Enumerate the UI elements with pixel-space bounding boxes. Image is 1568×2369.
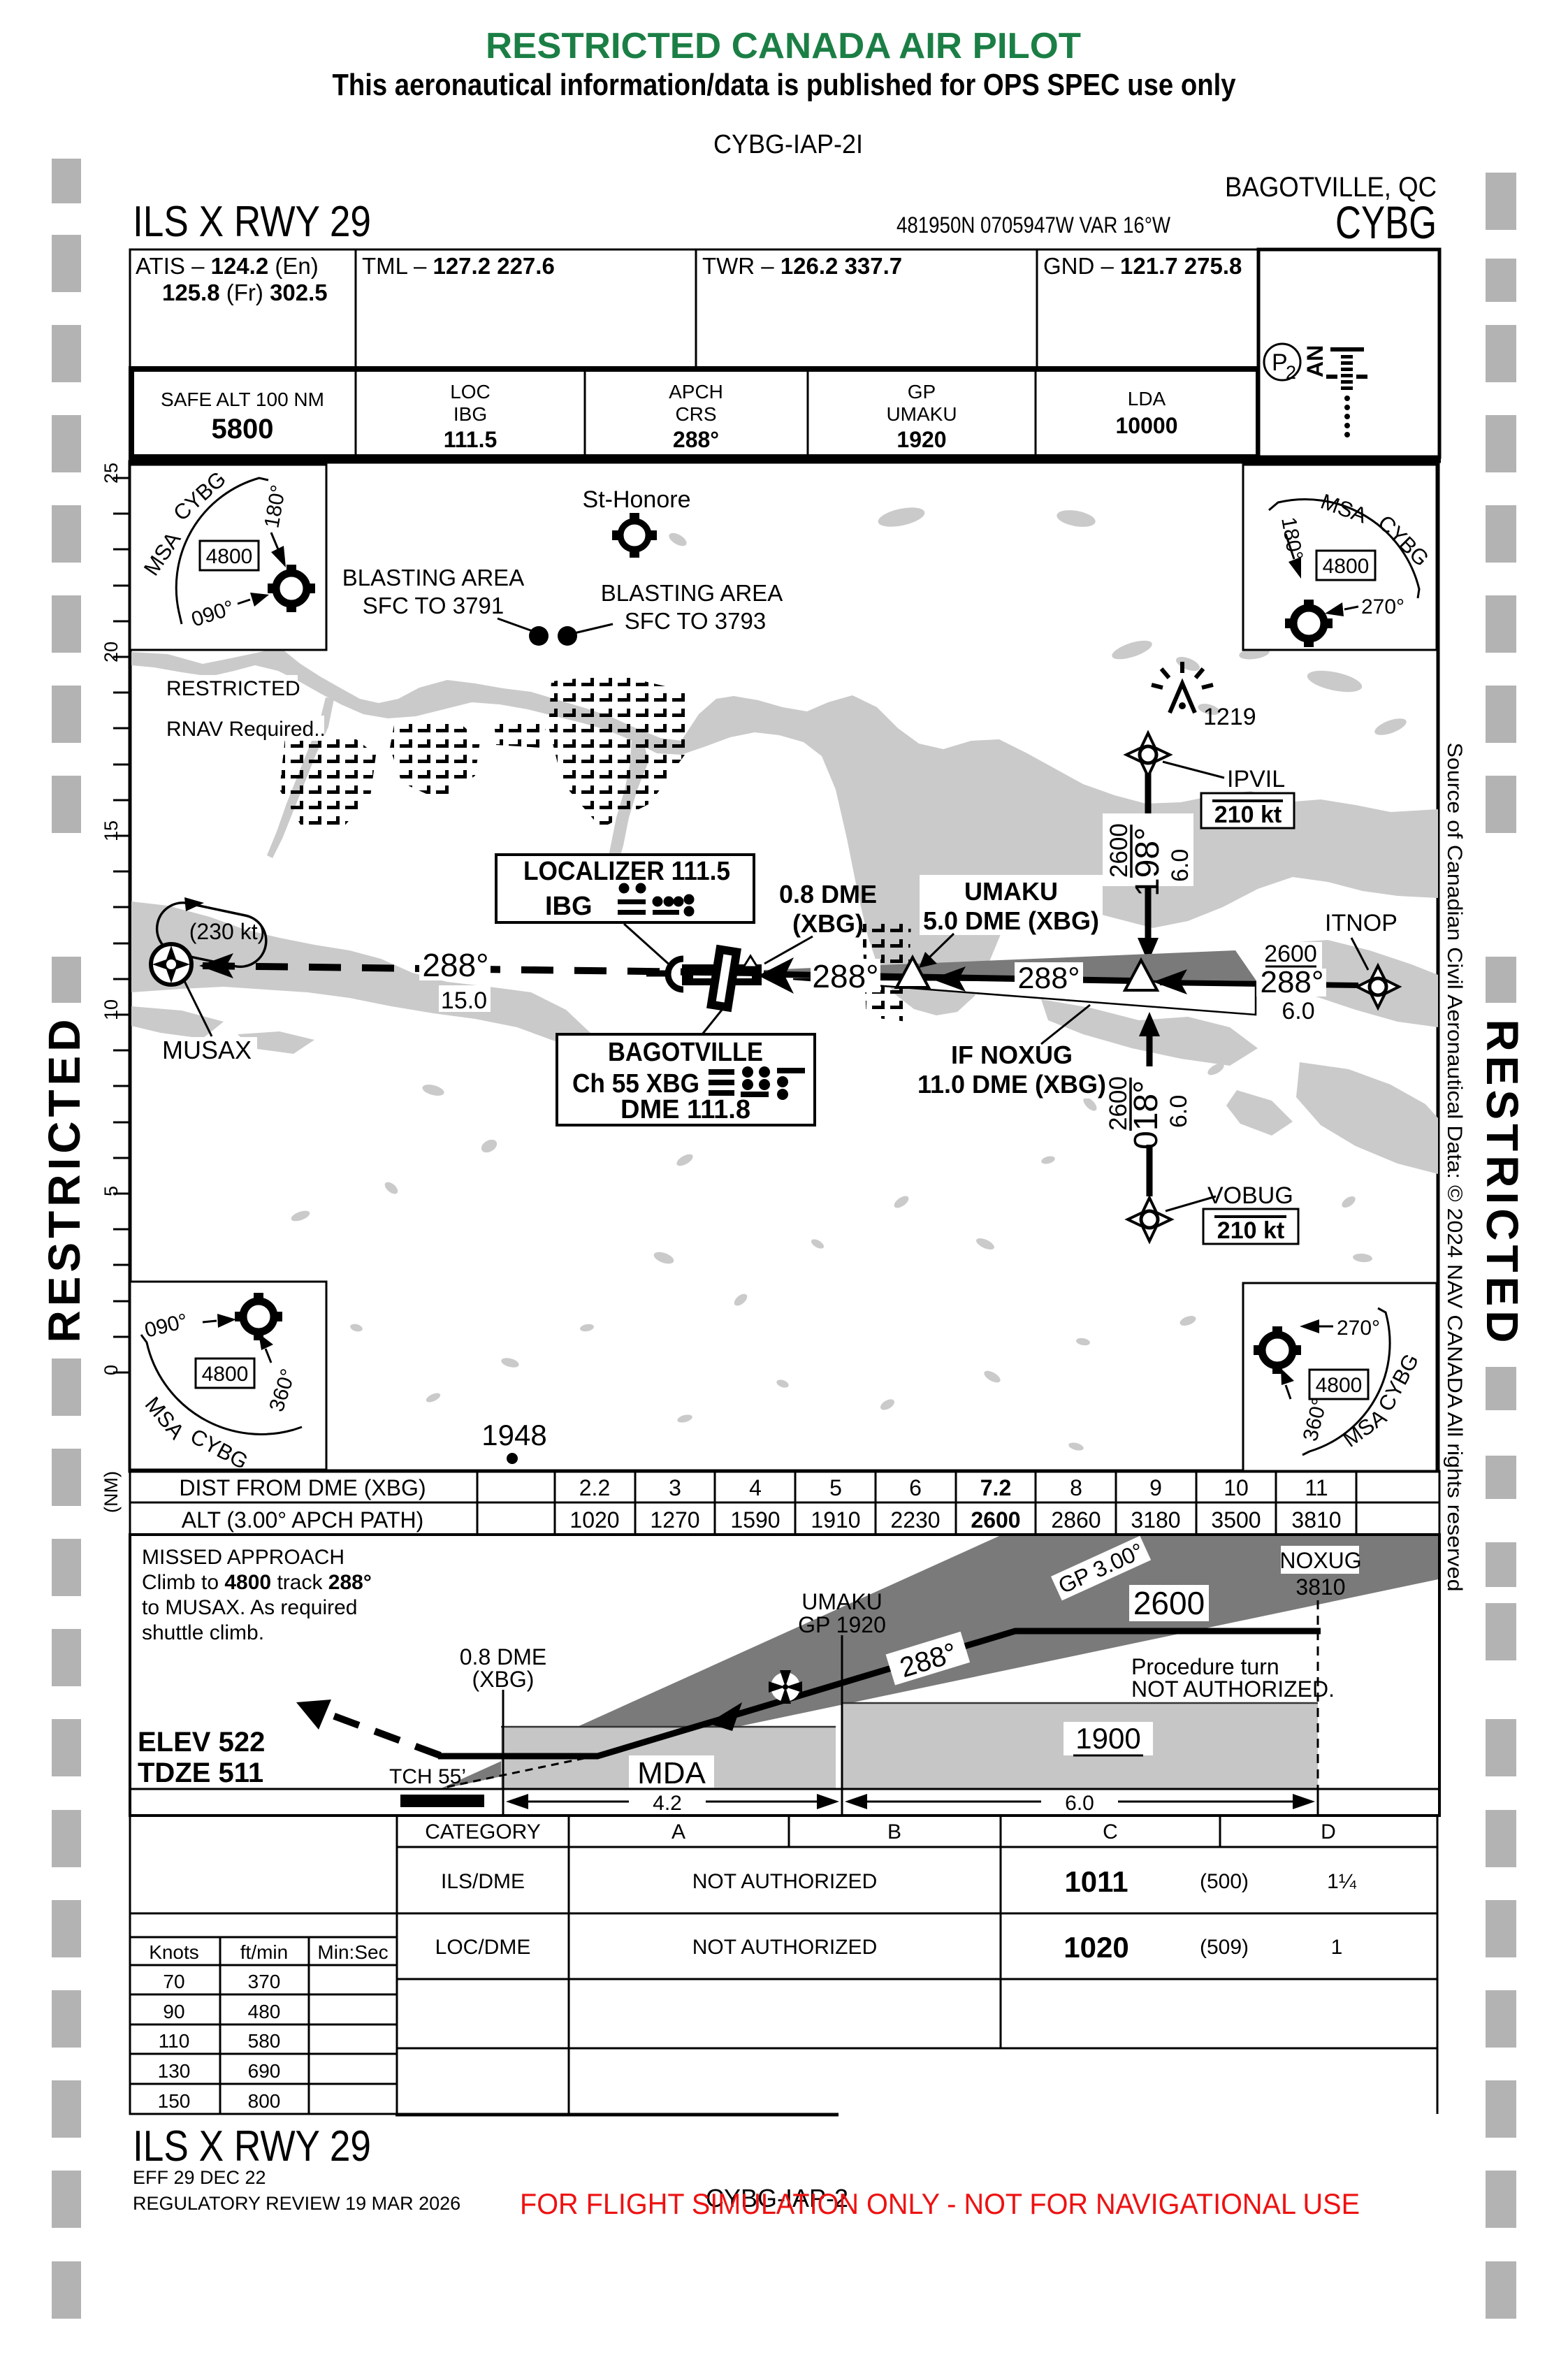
svg-text:270°: 270° [1337, 1317, 1380, 1340]
svg-text:UMAKU: UMAKU [886, 403, 957, 425]
svg-text:LOCALIZER 111.5: LOCALIZER 111.5 [523, 857, 730, 886]
svg-text:VOBUG: VOBUG [1207, 1182, 1293, 1209]
svg-text:DIST FROM DME (XBG): DIST FROM DME (XBG) [179, 1475, 426, 1500]
svg-text:RESTRICTED CANADA AIR PILOT: RESTRICTED CANADA AIR PILOT [486, 26, 1081, 66]
svg-text:RNAV Required..: RNAV Required.. [166, 718, 326, 741]
svg-text:1020: 1020 [569, 1507, 619, 1533]
svg-text:4800: 4800 [206, 545, 253, 568]
svg-text:LDA: LDA [1128, 388, 1166, 410]
svg-text:5.0 DME (XBG): 5.0 DME (XBG) [923, 906, 1099, 935]
svg-text:800: 800 [248, 2090, 281, 2112]
svg-text:3810: 3810 [1295, 1574, 1345, 1600]
svg-text:480: 480 [248, 2001, 281, 2022]
svg-text:BLASTING AREA: BLASTING AREA [601, 580, 783, 606]
svg-text:TML – 127.2 227.6: TML – 127.2 227.6 [362, 253, 555, 279]
svg-text:4800: 4800 [202, 1363, 249, 1386]
svg-text:NOT AUTHORIZED.: NOT AUTHORIZED. [1131, 1676, 1335, 1702]
svg-text:LOC/DME: LOC/DME [435, 1936, 531, 1959]
svg-text:580: 580 [248, 2030, 281, 2052]
svg-text:210 kt: 210 kt [1217, 1217, 1284, 1244]
svg-text:ILS X RWY 29: ILS X RWY 29 [133, 198, 371, 246]
svg-text:RESTRICTED: RESTRICTED [39, 1015, 89, 1343]
svg-text:90: 90 [163, 2001, 184, 2022]
svg-text:(500): (500) [1200, 1870, 1249, 1893]
svg-text:1219: 1219 [1203, 704, 1256, 730]
svg-text:MDA: MDA [637, 1756, 706, 1790]
svg-text:CYBG: CYBG [1335, 196, 1437, 248]
svg-text:2600: 2600 [971, 1507, 1020, 1533]
svg-text:15: 15 [101, 820, 122, 841]
svg-text:to MUSAX. As required: to MUSAX. As required [142, 1596, 357, 1619]
svg-text:1590: 1590 [730, 1507, 780, 1533]
svg-text:288°: 288° [1260, 965, 1323, 999]
svg-text:St-Honore: St-Honore [583, 486, 691, 513]
svg-text:150: 150 [158, 2090, 191, 2112]
svg-text:270°: 270° [1361, 595, 1404, 618]
svg-text:6.0: 6.0 [1167, 849, 1193, 882]
svg-text:UMAKU: UMAKU [964, 877, 1058, 906]
svg-text:70: 70 [163, 1971, 184, 1992]
svg-text:288°: 288° [673, 427, 719, 452]
svg-text:(XBG): (XBG) [472, 1667, 535, 1692]
svg-text:0: 0 [101, 1365, 122, 1375]
svg-text:Knots: Knots [149, 1941, 199, 1963]
svg-text:IBG: IBG [545, 892, 593, 921]
svg-text:CATEGORY: CATEGORY [425, 1820, 541, 1843]
svg-text:TCH 55’: TCH 55’ [389, 1765, 466, 1788]
svg-text:REGULATORY REVIEW 19 MAR 2026: REGULATORY REVIEW 19 MAR 2026 [133, 2193, 460, 2214]
svg-text:10: 10 [1224, 1475, 1249, 1500]
svg-text:Climb to 4800 track 288°: Climb to 4800 track 288° [142, 1571, 372, 1594]
svg-text:MUSAX: MUSAX [162, 1036, 252, 1064]
svg-text:11: 11 [1305, 1475, 1328, 1500]
svg-text:2: 2 [1286, 362, 1296, 383]
svg-text:ft/min: ft/min [240, 1941, 288, 1963]
svg-text:GP 1920: GP 1920 [798, 1612, 886, 1637]
svg-text:1910: 1910 [811, 1507, 860, 1533]
svg-text:D: D [1321, 1820, 1336, 1843]
svg-text:3500: 3500 [1211, 1507, 1261, 1533]
svg-text:Min:Sec: Min:Sec [317, 1941, 388, 1963]
svg-text:RESTRICTED: RESTRICTED [166, 677, 300, 700]
svg-text:20: 20 [101, 642, 122, 662]
svg-text:shuttle climb.: shuttle climb. [142, 1621, 264, 1644]
svg-text:GP: GP [908, 381, 936, 403]
svg-text:CYBG-IAP-2I: CYBG-IAP-2I [713, 130, 863, 159]
svg-text:7.2: 7.2 [980, 1475, 1011, 1500]
svg-text:1900: 1900 [1075, 1722, 1140, 1755]
svg-text:IF NOXUG: IF NOXUG [951, 1041, 1073, 1069]
svg-text:11.0 DME (XBG): 11.0 DME (XBG) [917, 1070, 1106, 1099]
svg-text:288°: 288° [812, 958, 878, 994]
svg-text:BLASTING AREA: BLASTING AREA [342, 565, 524, 591]
svg-text:6: 6 [909, 1475, 922, 1500]
svg-text:3: 3 [669, 1475, 681, 1500]
svg-text:ATIS – 124.2 (En): ATIS – 124.2 (En) [136, 253, 319, 279]
svg-text:125.8 (Fr) 302.5: 125.8 (Fr) 302.5 [162, 280, 328, 305]
svg-text:2600: 2600 [1264, 941, 1317, 967]
svg-text:6.0: 6.0 [1282, 998, 1314, 1024]
svg-text:RESTRICTED: RESTRICTED [1477, 1020, 1527, 1347]
svg-text:IBG: IBG [453, 403, 487, 425]
svg-text:ELEV 522: ELEV 522 [138, 1727, 265, 1758]
svg-text:5: 5 [101, 1186, 122, 1196]
svg-text:Procedure turn: Procedure turn [1131, 1654, 1279, 1679]
svg-text:1¼: 1¼ [1327, 1870, 1357, 1893]
svg-text:DME 111.8: DME 111.8 [620, 1095, 750, 1124]
svg-text:4800: 4800 [1316, 1374, 1363, 1397]
svg-text:3180: 3180 [1131, 1507, 1180, 1533]
svg-text:8: 8 [1070, 1475, 1082, 1500]
svg-text:SFC TO 3791: SFC TO 3791 [363, 593, 504, 618]
svg-text:Source of Canadian Civil Aeron: Source of Canadian Civil Aeronautical Da… [1443, 743, 1466, 1592]
svg-text:0.8 DME: 0.8 DME [779, 880, 877, 908]
svg-text:C: C [1103, 1820, 1118, 1843]
svg-text:210 kt: 210 kt [1214, 802, 1282, 828]
svg-text:25: 25 [101, 463, 122, 484]
svg-text:4.2: 4.2 [653, 1792, 682, 1815]
svg-text:15.0: 15.0 [441, 987, 487, 1014]
svg-text:ILS/DME: ILS/DME [441, 1870, 525, 1893]
svg-text:AN: AN [1302, 345, 1328, 377]
svg-text:10000: 10000 [1116, 413, 1178, 438]
svg-text:1: 1 [1331, 1936, 1343, 1959]
svg-text:370: 370 [248, 1971, 281, 1992]
svg-text:EFF 29 DEC 22: EFF 29 DEC 22 [133, 2167, 266, 2188]
svg-text:ILS X RWY 29: ILS X RWY 29 [133, 2122, 371, 2171]
svg-text:1020: 1020 [1064, 1931, 1128, 1964]
svg-text:(509): (509) [1200, 1936, 1249, 1959]
svg-text:481950N 0705947W VAR 16°W: 481950N 0705947W VAR 16°W [896, 212, 1171, 238]
svg-text:NOXUG: NOXUG [1279, 1548, 1361, 1573]
svg-text:018°: 018° [1128, 1080, 1165, 1150]
svg-text:1011: 1011 [1064, 1865, 1128, 1898]
svg-text:CRS: CRS [675, 403, 716, 425]
svg-text:2230: 2230 [890, 1507, 940, 1533]
svg-text:TWR – 126.2 337.7: TWR – 126.2 337.7 [702, 253, 902, 279]
svg-text:MISSED APPROACH: MISSED APPROACH [142, 1546, 344, 1569]
svg-text:This aeronautical information/: This aeronautical information/data is pu… [333, 68, 1236, 102]
svg-text:4: 4 [749, 1475, 762, 1500]
svg-text:10: 10 [101, 999, 122, 1020]
svg-text:110: 110 [159, 2030, 190, 2052]
svg-text:APCH: APCH [669, 381, 723, 403]
svg-text:LOC: LOC [450, 381, 491, 403]
svg-text:198°: 198° [1129, 827, 1166, 897]
svg-text:Ch 55 XBG: Ch 55 XBG [572, 1069, 699, 1099]
svg-text:ALT (3.00° APCH PATH): ALT (3.00° APCH PATH) [182, 1507, 424, 1533]
svg-text:SFC TO 3793: SFC TO 3793 [625, 608, 766, 634]
svg-text:SAFE ALT 100 NM: SAFE ALT 100 NM [161, 389, 324, 410]
svg-text:(NM): (NM) [101, 1471, 122, 1513]
svg-text:4800: 4800 [1323, 555, 1370, 578]
svg-text:TDZE 511: TDZE 511 [138, 1758, 263, 1788]
svg-text:FOR FLIGHT SIMULATION ONLY - N: FOR FLIGHT SIMULATION ONLY - NOT FOR NAV… [520, 2187, 1360, 2220]
svg-text:5: 5 [829, 1475, 842, 1500]
svg-text:2600: 2600 [1133, 1585, 1205, 1621]
svg-text:UMAKU: UMAKU [801, 1589, 883, 1614]
svg-text:BAGOTVILLE: BAGOTVILLE [608, 1038, 763, 1067]
svg-text:(230 kt): (230 kt) [189, 919, 265, 944]
svg-text:B: B [887, 1820, 901, 1843]
svg-text:9: 9 [1149, 1475, 1162, 1500]
svg-text:0.8 DME: 0.8 DME [460, 1644, 546, 1669]
svg-text:6.0: 6.0 [1065, 1792, 1094, 1815]
svg-text:3810: 3810 [1291, 1507, 1341, 1533]
svg-text:1270: 1270 [650, 1507, 699, 1533]
svg-text:ITNOP: ITNOP [1325, 910, 1398, 936]
svg-text:(XBG): (XBG) [792, 909, 864, 938]
svg-text:288°: 288° [422, 947, 488, 983]
svg-text:288°: 288° [1018, 962, 1080, 995]
svg-text:1948: 1948 [481, 1419, 546, 1451]
svg-text:1920: 1920 [896, 427, 946, 452]
svg-text:2.2: 2.2 [579, 1475, 610, 1500]
svg-text:690: 690 [248, 2060, 281, 2082]
svg-text:5800: 5800 [212, 414, 274, 444]
svg-text:IPVIL: IPVIL [1227, 766, 1285, 792]
svg-text:111.5: 111.5 [444, 427, 498, 452]
svg-text:NOT AUTHORIZED: NOT AUTHORIZED [692, 1936, 877, 1959]
svg-text:130: 130 [158, 2060, 191, 2082]
svg-text:A: A [672, 1820, 685, 1843]
svg-text:6.0: 6.0 [1166, 1095, 1192, 1128]
svg-text:GND – 121.7 275.8: GND – 121.7 275.8 [1043, 253, 1242, 279]
svg-text:2860: 2860 [1051, 1507, 1101, 1533]
svg-text:NOT AUTHORIZED: NOT AUTHORIZED [692, 1870, 877, 1893]
